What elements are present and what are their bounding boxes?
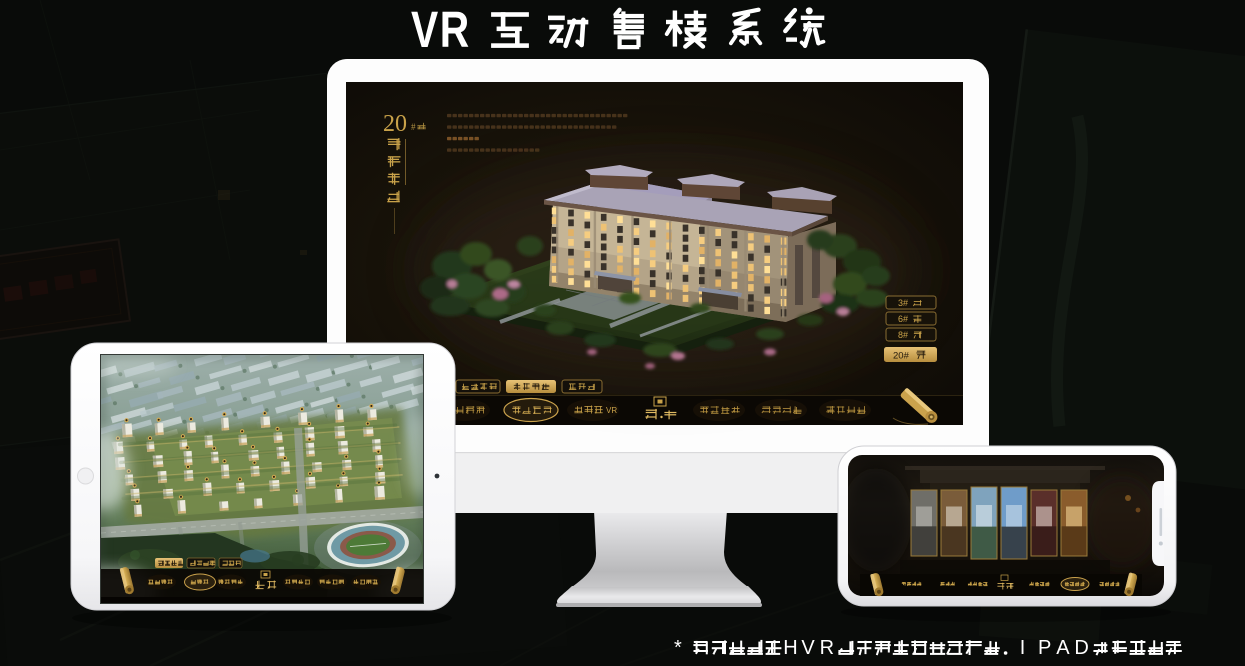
svg-text:8#: 8# <box>898 330 908 340</box>
svg-text:H: H <box>783 637 797 659</box>
svg-text:R: R <box>820 637 834 659</box>
svg-text:V: V <box>801 637 815 659</box>
svg-text:20#: 20# <box>893 351 910 362</box>
svg-text:6#: 6# <box>898 314 908 324</box>
svg-text:D: D <box>1074 637 1088 659</box>
svg-text:20: 20 <box>383 111 407 137</box>
svg-text:3#: 3# <box>898 298 908 308</box>
svg-text:VR: VR <box>411 1 471 58</box>
svg-text:#: # <box>411 122 416 132</box>
svg-text:I: I <box>1020 637 1026 659</box>
svg-text:*: * <box>674 637 682 659</box>
svg-text:A: A <box>1056 637 1070 659</box>
svg-text:P: P <box>1038 637 1051 659</box>
svg-text:VR: VR <box>606 406 617 415</box>
